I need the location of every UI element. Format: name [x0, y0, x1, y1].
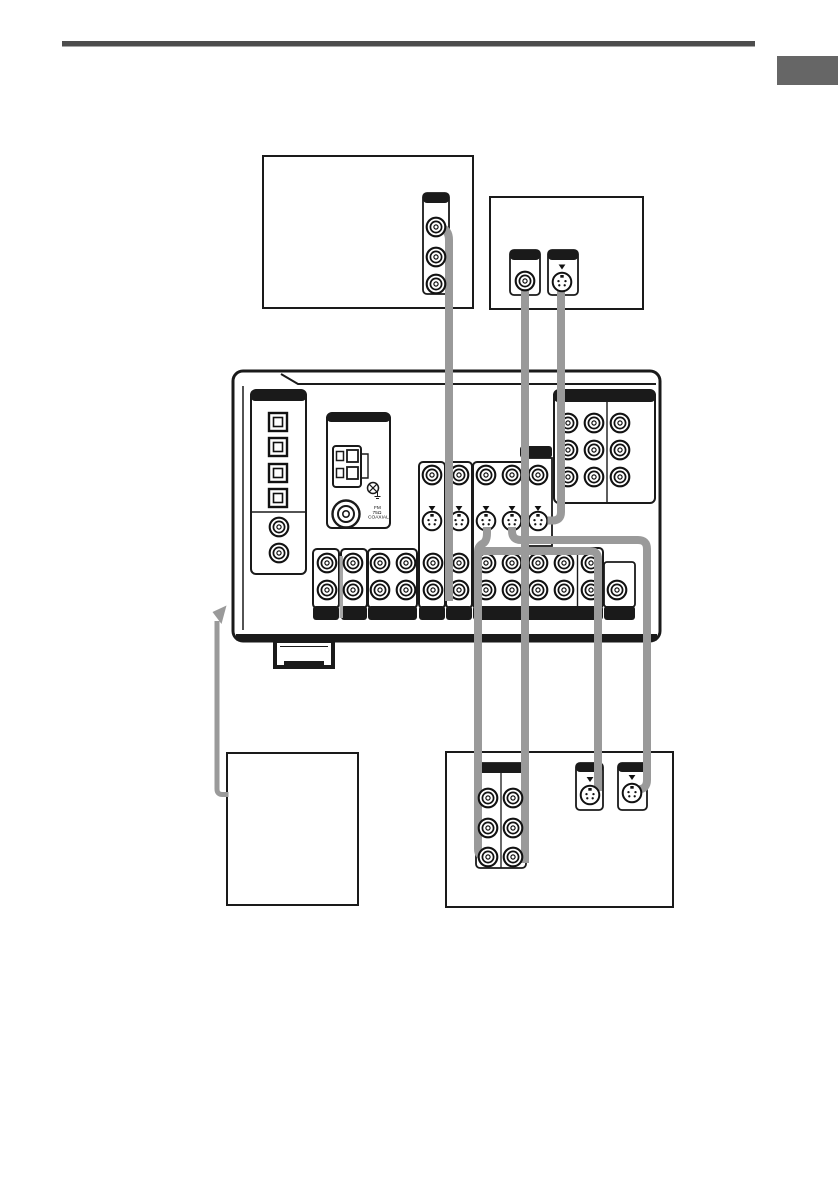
rca-jack-icon — [424, 581, 443, 600]
rca-jack-icon — [529, 466, 548, 485]
optical-jack-icon — [269, 464, 287, 482]
rca-jack-icon — [504, 848, 523, 867]
section-header-bar — [327, 413, 390, 422]
s-video-jack-icon — [553, 273, 572, 292]
tv-monitor-jacks — [427, 218, 446, 294]
foot-pad — [284, 661, 324, 668]
s-video-jack-icon — [581, 786, 600, 805]
rca-jack-icon — [555, 581, 574, 600]
rca-jack-icon — [427, 248, 446, 267]
rca-jack-icon — [529, 554, 548, 573]
fm-coaxial-jack — [333, 501, 360, 528]
section-header-bar — [251, 390, 306, 401]
rca-jack-icon — [516, 272, 535, 291]
rca-jack-icon — [477, 466, 496, 485]
chapter-index-tab — [777, 56, 838, 85]
rca-jack-icon — [318, 581, 337, 600]
s-video-jack-icon — [623, 784, 642, 803]
rca-jack-icon — [503, 466, 522, 485]
section-header-bar — [554, 390, 655, 402]
rca-jack-icon — [397, 581, 416, 600]
s-video-jack-icon — [423, 512, 442, 531]
rca-jack-icon — [479, 789, 498, 808]
svg-text:COAXIAL: COAXIAL — [368, 515, 389, 521]
optical-jack-icon — [269, 438, 287, 456]
rca-jack-icon — [479, 848, 498, 867]
rca-jack-icon — [585, 441, 604, 460]
rca-jack-icon — [585, 414, 604, 433]
rca-jack-icon — [318, 554, 337, 573]
section-title-rule — [62, 41, 755, 47]
vcr-box — [490, 197, 643, 309]
rca-jack-icon — [555, 554, 574, 573]
rca-jack-icon — [503, 581, 522, 600]
digital-input-section — [251, 390, 306, 574]
rca-jack-icon — [479, 819, 498, 838]
rca-jack-icon — [503, 554, 522, 573]
rca-jack-icon — [504, 789, 523, 808]
s-video-jack-icon — [529, 512, 548, 531]
jack-strip-header — [548, 250, 578, 260]
rca-jack-icon — [611, 414, 630, 433]
rca-jack-icon — [529, 581, 548, 600]
rca-jack-icon — [585, 468, 604, 487]
optical-jack-icon — [269, 413, 287, 431]
optical-jack-icon — [269, 489, 287, 507]
rca-jack-icon — [371, 554, 390, 573]
rca-jack-icon — [270, 544, 289, 563]
hookup-diagram: FM 75Ω COAXIAL — [0, 0, 838, 1190]
rca-jack-icon — [344, 554, 363, 573]
rca-jack-icon — [397, 554, 416, 573]
rca-jack-icon — [608, 581, 627, 600]
rca-jack-icon — [504, 819, 523, 838]
jack-strip-header — [476, 763, 526, 773]
group-divider-strip — [340, 556, 344, 618]
antenna-section: FM 75Ω COAXIAL — [327, 413, 390, 528]
manual-page: FM 75Ω COAXIAL — [0, 0, 838, 1190]
jack-strip-header — [618, 763, 647, 772]
receiver-foot — [273, 635, 335, 668]
rca-jack-icon — [423, 466, 442, 485]
rca-jack-icon — [611, 468, 630, 487]
rca-jack-icon — [344, 581, 363, 600]
rca-jack-icon — [371, 581, 390, 600]
rca-jack-icon — [424, 554, 443, 573]
rca-jack-icon — [611, 441, 630, 460]
rca-jack-icon — [427, 218, 446, 237]
rca-jack-icon — [427, 275, 446, 294]
jack-strip-header — [510, 250, 540, 260]
component-video-section — [554, 390, 655, 503]
rca-jack-icon — [270, 518, 289, 537]
bottom-left-note-box — [227, 753, 358, 905]
jack-strip-header — [423, 193, 449, 203]
